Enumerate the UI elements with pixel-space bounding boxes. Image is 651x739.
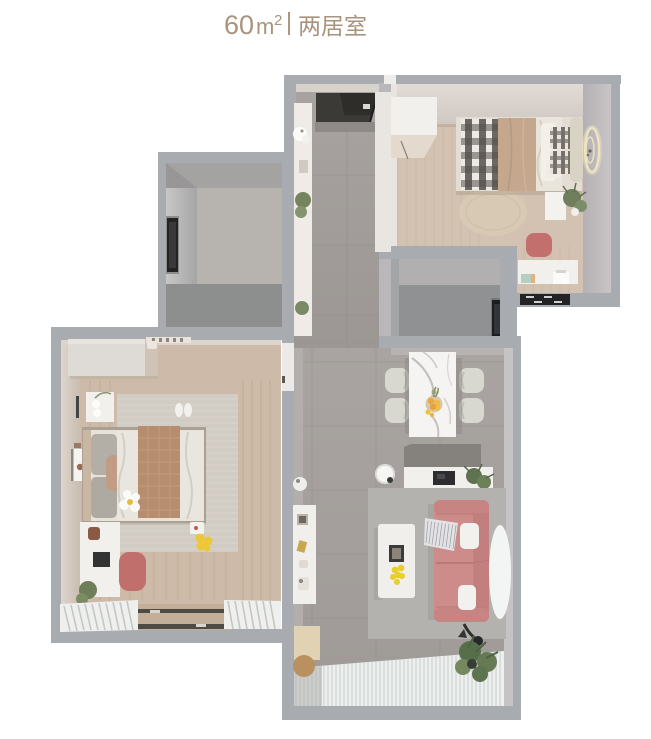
svg-text:60: 60 [224,10,254,40]
svg-text:m: m [256,14,274,39]
svg-text:2: 2 [274,12,282,29]
svg-text:两居室: 两居室 [298,13,367,39]
